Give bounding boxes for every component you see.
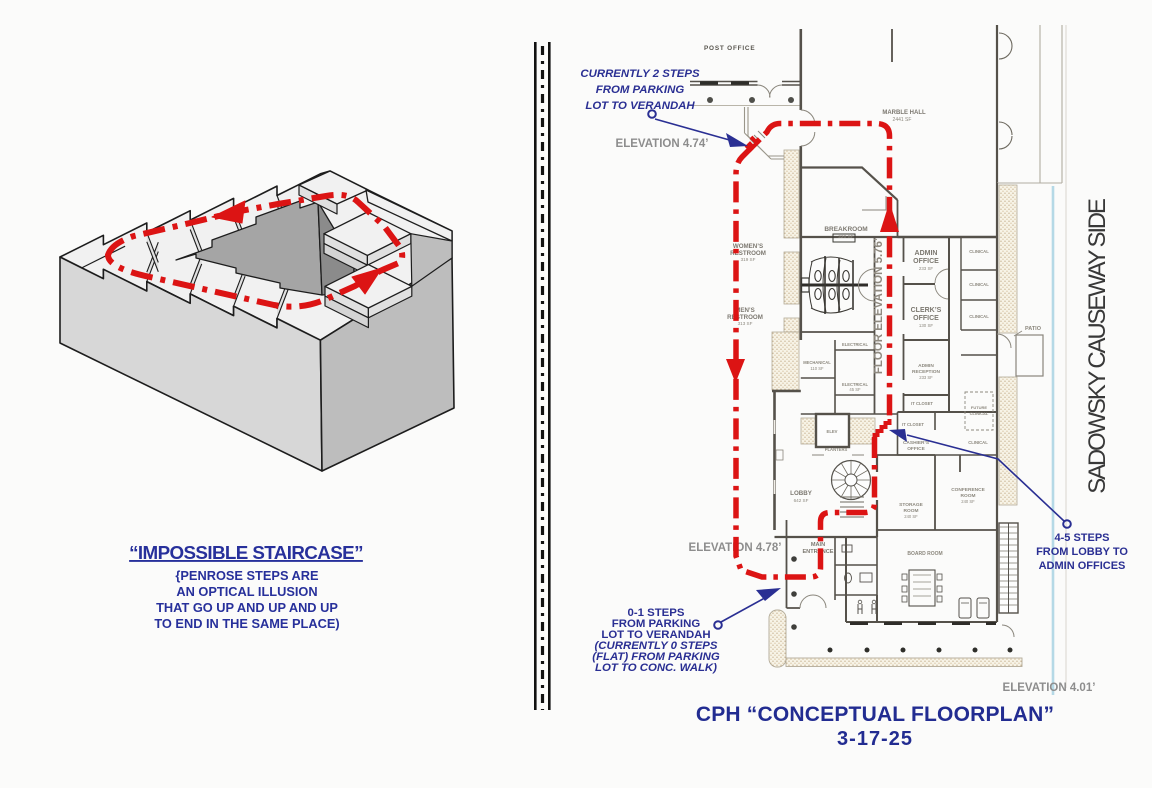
svg-text:ELEV: ELEV <box>827 429 838 434</box>
svg-text:220 SF: 220 SF <box>838 234 854 240</box>
svg-text:LOT TO CONC. WALK): LOT TO CONC. WALK) <box>595 662 717 674</box>
svg-text:MARBLE HALL: MARBLE HALL <box>882 110 926 116</box>
svg-text:STORAGE: STORAGE <box>899 502 923 508</box>
svg-text:LOT TO VERANDAH: LOT TO VERANDAH <box>585 100 695 112</box>
svg-text:130 SF: 130 SF <box>919 323 933 328</box>
svg-text:THAT GO UP AND UP AND UP: THAT GO UP AND UP AND UP <box>156 600 338 615</box>
svg-text:CURRENTLY 2 STEPS: CURRENTLY 2 STEPS <box>580 68 700 80</box>
svg-text:FROM PARKING: FROM PARKING <box>596 84 685 96</box>
svg-text:4-5 STEPS: 4-5 STEPS <box>1054 532 1109 544</box>
svg-text:AN OPTICAL ILLUSION: AN OPTICAL ILLUSION <box>176 584 317 599</box>
svg-text:MECHANICAL: MECHANICAL <box>803 360 831 365</box>
svg-text:CLINICAL: CLINICAL <box>969 282 989 287</box>
svg-text:CLINICAL: CLINICAL <box>970 411 989 416</box>
svg-text:233 SF: 233 SF <box>919 375 933 380</box>
svg-text:TO END IN THE SAME PLACE): TO END IN THE SAME PLACE) <box>154 616 339 631</box>
svg-text:“IMPOSSIBLE STAIRCASE”: “IMPOSSIBLE STAIRCASE” <box>129 542 363 563</box>
svg-text:642 SF: 642 SF <box>794 498 809 503</box>
svg-text:ADMIN OFFICES: ADMIN OFFICES <box>1039 560 1126 572</box>
svg-text:LOBBY: LOBBY <box>790 490 813 497</box>
svg-text:OFFICE: OFFICE <box>913 258 939 265</box>
svg-text:PATIO: PATIO <box>1025 326 1042 332</box>
svg-text:240 SF: 240 SF <box>904 514 918 519</box>
svg-text:SADOWSKY CAUSEWAY SIDE: SADOWSKY CAUSEWAY SIDE <box>1084 199 1111 494</box>
svg-text:CLINICAL: CLINICAL <box>969 249 989 254</box>
svg-text:313 SF: 313 SF <box>738 321 753 326</box>
svg-text:CLINICAL: CLINICAL <box>969 314 989 319</box>
svg-text:MAIN: MAIN <box>811 542 825 548</box>
svg-text:ELEVATION 4.01’: ELEVATION 4.01’ <box>1003 682 1096 694</box>
svg-text:FLOOR ELEVATION 5.76’: FLOOR ELEVATION 5.76’ <box>873 238 885 374</box>
svg-text:FROM LOBBY TO: FROM LOBBY TO <box>1036 546 1128 558</box>
svg-text:ELECTRICAL: ELECTRICAL <box>842 342 868 347</box>
svg-text:CPH “CONCEPTUAL FLOORPLAN”: CPH “CONCEPTUAL FLOORPLAN” <box>696 703 1054 726</box>
svg-text:45 SF: 45 SF <box>849 387 861 392</box>
svg-text:PLANTERS: PLANTERS <box>825 447 848 452</box>
svg-text:3-17-25: 3-17-25 <box>837 728 913 750</box>
svg-text:CASHIER’S: CASHIER’S <box>903 440 930 446</box>
svg-text:OFFICE: OFFICE <box>913 315 939 322</box>
svg-text:CONFERENCE: CONFERENCE <box>951 487 985 493</box>
svg-text:240 SF: 240 SF <box>961 499 975 504</box>
svg-text:{PENROSE STEPS ARE: {PENROSE STEPS ARE <box>175 568 319 583</box>
svg-text:FUTURE: FUTURE <box>971 405 988 410</box>
svg-text:POST OFFICE: POST OFFICE <box>704 45 755 52</box>
svg-text:BOARD ROOM: BOARD ROOM <box>907 551 942 557</box>
svg-text:ADMIN: ADMIN <box>918 363 934 369</box>
svg-text:RESTROOM: RESTROOM <box>727 314 763 321</box>
svg-text:OFFICE: OFFICE <box>907 446 925 452</box>
svg-text:IT CLOSET: IT CLOSET <box>911 401 933 406</box>
svg-text:ELEVATION 4.74’: ELEVATION 4.74’ <box>616 138 709 150</box>
svg-text:IT CLOSET: IT CLOSET <box>902 422 924 427</box>
svg-text:ADMIN: ADMIN <box>915 250 938 257</box>
svg-text:233 SF: 233 SF <box>919 266 933 271</box>
svg-text:CLINICAL: CLINICAL <box>968 440 988 445</box>
svg-text:2441 SF: 2441 SF <box>893 117 912 123</box>
svg-text:319 SF: 319 SF <box>741 257 756 262</box>
svg-text:BREAKROOM: BREAKROOM <box>824 226 867 233</box>
svg-text:CLERK’S: CLERK’S <box>911 307 942 314</box>
svg-text:110 SF: 110 SF <box>810 366 824 371</box>
